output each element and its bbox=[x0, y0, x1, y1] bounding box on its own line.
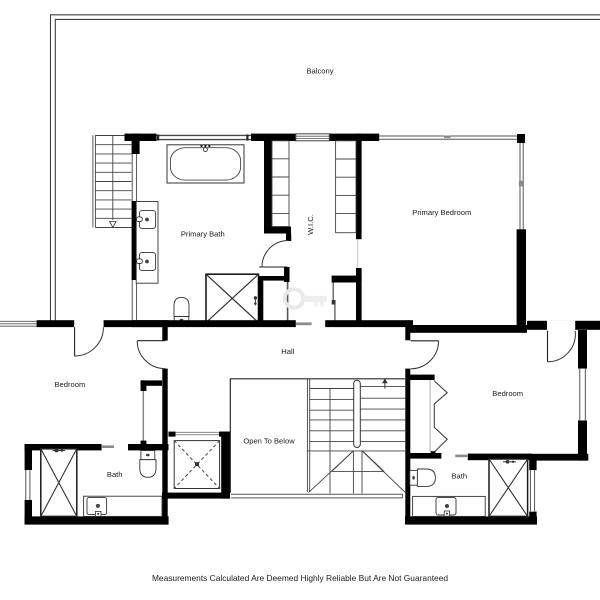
svg-text:Primary Bath: Primary Bath bbox=[181, 230, 225, 239]
svg-text:Bedroom: Bedroom bbox=[492, 389, 523, 398]
svg-text:Bedroom: Bedroom bbox=[54, 380, 85, 389]
svg-text:Bath: Bath bbox=[107, 470, 123, 479]
svg-text:Bath: Bath bbox=[451, 472, 467, 481]
svg-text:Measurements Calculated Are De: Measurements Calculated Are Deemed Highl… bbox=[152, 573, 448, 583]
svg-text:Open To Below: Open To Below bbox=[243, 436, 295, 445]
svg-text:Hall: Hall bbox=[281, 347, 294, 356]
svg-text:Primary Bedroom: Primary Bedroom bbox=[412, 208, 471, 217]
svg-text:W.I.C.: W.I.C. bbox=[306, 214, 315, 235]
svg-text:Balcony: Balcony bbox=[306, 67, 333, 76]
